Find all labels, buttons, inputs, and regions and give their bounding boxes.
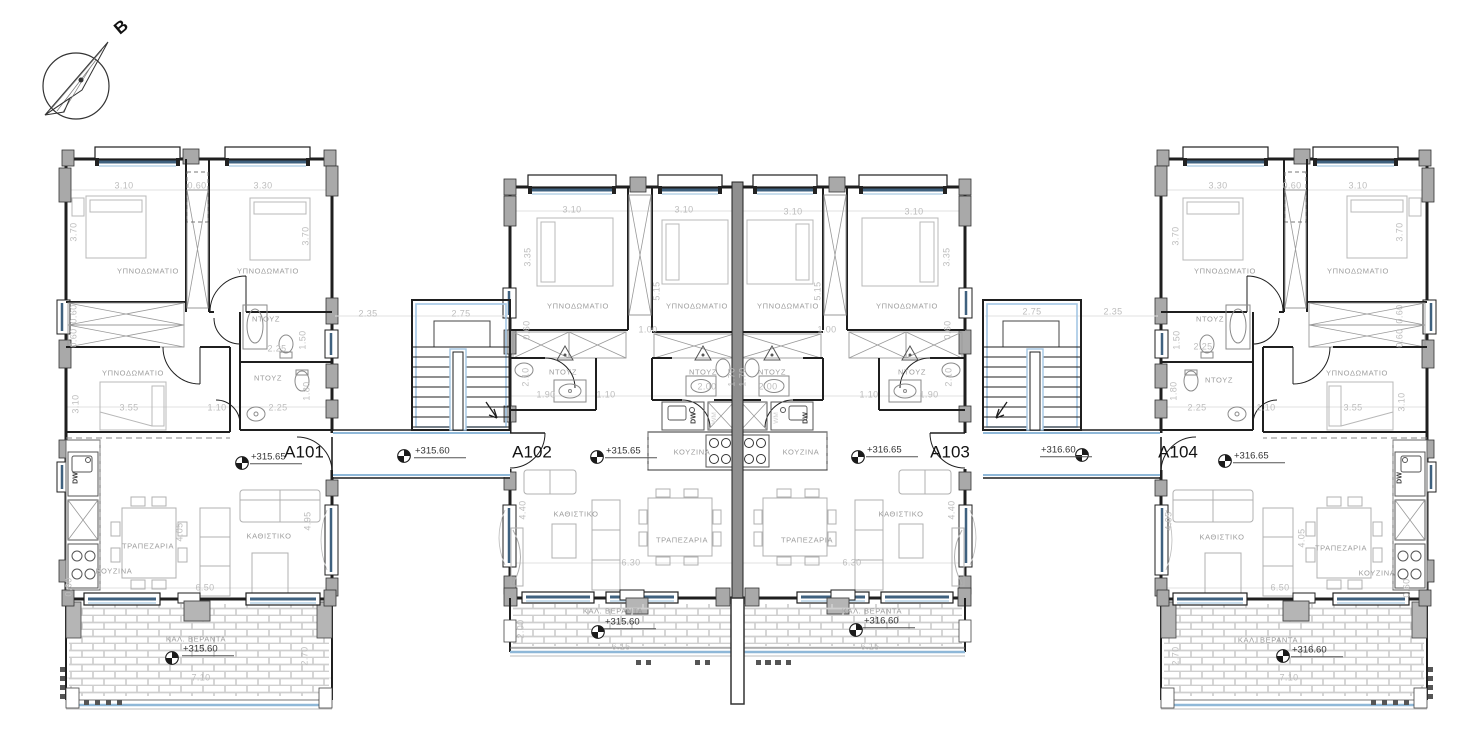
level-label: +316.60 <box>863 616 915 628</box>
appliance-label: WM <box>774 412 781 424</box>
room-label: ΚΟΥΖΙΝΑ <box>783 448 820 456</box>
apartment-id-label: A104 <box>1158 444 1198 461</box>
dimension-label: 1.10 <box>1256 404 1275 413</box>
dimension-label: 0.60 <box>1396 304 1405 323</box>
dimension-label: 2.35 <box>1103 308 1122 317</box>
dimension-label: 3.10 <box>1348 182 1367 191</box>
room-label: ΚΑΛ. ΒΕΡΑΝΤΑ <box>842 607 902 615</box>
level-label: +315.65 <box>605 446 657 458</box>
dimension-label: 2.75 <box>451 310 470 319</box>
dimension-label: 4.40 <box>519 500 528 519</box>
north-label: B <box>111 17 131 38</box>
appliance-label: WM <box>712 412 719 424</box>
dimension-label: 6.15 <box>860 643 879 652</box>
dimension-label: 1.70 <box>739 367 748 386</box>
room-label: ΤΡΑΠΕΖΑΡΙΑ <box>781 536 833 544</box>
room-label: ΝΤΟΥΖ <box>758 368 786 376</box>
dimension-label: 0.60 <box>1282 182 1301 191</box>
dimension-label: 0.60 <box>65 577 74 596</box>
dimension-label: 3.30 <box>253 182 272 191</box>
room-label: ΥΠΝΟΔΩΜΑΤΙΟ <box>102 369 164 377</box>
dimension-label: 2.25 <box>1187 404 1206 413</box>
dimension-label: 1.00 <box>638 326 657 335</box>
appliance-label: DW <box>803 412 810 424</box>
level-label: +315.60 <box>182 644 234 656</box>
dimension-label: 4.05 <box>176 522 185 541</box>
dimension-label: 0.60 <box>523 320 532 339</box>
dimension-label: 1.00 <box>817 326 836 335</box>
level-label: +315.60 <box>604 617 656 629</box>
dimension-label: 3.10 <box>72 394 81 413</box>
room-label: ΚΑΛ. ΒΕΡΑΝΤΑ <box>1238 636 1298 644</box>
room-label: ΝΤΟΥΖ <box>689 368 717 376</box>
room-label: ΚΑΛ. ΒΕΡΑΝΤΑ <box>583 607 643 615</box>
room-label: ΚΑΛ. ΒΕΡΑΝΤΑ <box>166 635 226 643</box>
room-label: ΤΡΑΠΕΖΑΡΙΑ <box>656 536 708 544</box>
dimension-label: 3.35 <box>943 247 952 266</box>
dimension-label: 6.15 <box>611 643 630 652</box>
room-label: ΚΑΘΙΣΤΙΚΟ <box>553 510 598 518</box>
level-label: +316.60 <box>1040 445 1092 457</box>
room-label: ΝΤΟΥΖ <box>252 315 280 323</box>
level-label: +315.65 <box>250 452 302 464</box>
dimension-label: 3.70 <box>70 222 79 241</box>
room-label: ΚΑΘΙΣΤΙΚΟ <box>1199 533 1244 541</box>
dimension-label: 2.25 <box>267 345 286 354</box>
room-label: ΥΠΝΟΔΩΜΑΤΙΟ <box>1194 267 1256 275</box>
room-label: ΚΑΘΙΣΤΙΚΟ <box>246 532 291 540</box>
dimension-label: 5.15 <box>653 281 662 300</box>
dimension-label: 3.10 <box>1398 392 1407 411</box>
dimension-label: 0.60 <box>70 304 79 323</box>
dimension-label: 6.50 <box>195 584 214 593</box>
room-label: ΚΟΥΖΙΝΑ <box>674 448 711 456</box>
dimension-label: 1.50 <box>1173 330 1182 349</box>
room-label: ΝΤΟΥΖ <box>898 368 926 376</box>
floor-plan-canvas: B3.100.603.303.703.70ΥΠΝΟΔΩΜΑΤΙΟΥΠΝΟΔΩΜΑ… <box>0 0 1477 738</box>
room-label: ΥΠΝΟΔΩΜΑΤΙΟ <box>757 302 819 310</box>
dimension-label: 1.70 <box>728 367 737 386</box>
dimension-label: 4.95 <box>304 511 313 530</box>
room-label: ΤΡΑΠΕΖΑΡΙΑ <box>1315 544 1367 552</box>
room-label: ΥΠΝΟΔΩΜΑΤΙΟ <box>876 302 938 310</box>
dimension-label: 2.35 <box>358 310 377 319</box>
dimension-label: 1.90 <box>919 391 938 400</box>
dimension-label: 1.10 <box>596 391 615 400</box>
level-label: +316.65 <box>866 445 918 457</box>
dimension-label: 2.25 <box>1193 343 1212 352</box>
dimension-label: 7.10 <box>1279 674 1298 683</box>
dimension-label: 2.70 <box>301 646 310 665</box>
dimension-label: 0.60 <box>70 328 79 347</box>
dimension-label: 6.30 <box>842 559 861 568</box>
room-label: ΥΠΝΟΔΩΜΑΤΙΟ <box>237 267 299 275</box>
dimension-label: 1.90 <box>536 391 555 400</box>
dimension-label: 6.30 <box>621 559 640 568</box>
dimension-label: 2.00 <box>697 383 716 392</box>
dimension-label: 3.55 <box>119 404 138 413</box>
dimension-label: 4.40 <box>948 500 957 519</box>
dimension-label: 4.05 <box>1298 528 1307 547</box>
dimension-label: 1.10 <box>859 391 878 400</box>
dimension-label: 3.70 <box>302 226 311 245</box>
dimension-label: 2.00 <box>517 619 526 638</box>
dimension-label: 0.60 <box>1403 578 1412 597</box>
level-label: +316.65 <box>1233 451 1285 463</box>
room-label: ΝΤΟΥΖ <box>549 368 577 376</box>
dimension-label: 3.10 <box>783 208 802 217</box>
dimension-label: 3.30 <box>1208 182 1227 191</box>
appliance-label: DW <box>73 472 80 484</box>
dimension-label: 3.70 <box>1396 222 1405 241</box>
room-label: ΚΟΥΖΙΝΑ <box>1359 569 1396 577</box>
room-label: ΚΑΘΙΣΤΙΚΟ <box>878 510 923 518</box>
dimension-label: 1.50 <box>299 330 308 349</box>
level-label: +315.60 <box>414 446 466 458</box>
dimension-label: 0.60 <box>1396 328 1405 347</box>
room-label: ΥΠΝΟΔΩΜΑΤΙΟ <box>117 267 179 275</box>
dimension-label: 1.80 <box>1170 381 1179 400</box>
dimension-label: 2.10 <box>522 367 531 386</box>
dimension-label: 3.10 <box>904 208 923 217</box>
dimension-label: 1.10 <box>207 404 226 413</box>
level-label: +316.60 <box>1291 645 1343 657</box>
room-label: ΥΠΝΟΔΩΜΑΤΙΟ <box>1326 369 1388 377</box>
dimension-label: 3.10 <box>562 206 581 215</box>
dimension-label: 3.10 <box>674 206 693 215</box>
dimension-label: 2.75 <box>1022 308 1041 317</box>
dimension-label: 7.10 <box>191 674 210 683</box>
dimension-label: 2.70 <box>1172 646 1181 665</box>
dimension-label: 2.00 <box>758 383 777 392</box>
dimension-label: 3.55 <box>1343 404 1362 413</box>
room-label: ΝΤΟΥΖ <box>1196 315 1224 323</box>
appliance-label: DW <box>691 412 698 424</box>
apartment-id-label: A103 <box>930 444 970 461</box>
text-labels-layer: B3.100.603.303.703.70ΥΠΝΟΔΩΜΑΤΙΟΥΠΝΟΔΩΜΑ… <box>0 0 1477 738</box>
dimension-label: 3.35 <box>524 247 533 266</box>
room-label: ΝΤΟΥΖ <box>254 374 282 382</box>
dimension-label: 3.70 <box>1172 226 1181 245</box>
room-label: ΥΠΝΟΔΩΜΑΤΙΟ <box>666 302 728 310</box>
room-label: ΤΡΑΠΕΖΑΡΙΑ <box>122 542 174 550</box>
room-label: ΝΤΟΥΖ <box>1205 376 1233 384</box>
dimension-label: 2.10 <box>945 367 954 386</box>
dimension-label: 0.60 <box>187 182 206 191</box>
room-label: ΥΠΝΟΔΩΜΑΤΙΟ <box>1327 267 1389 275</box>
dimension-label: 3.10 <box>114 182 133 191</box>
dimension-label: 0.60 <box>944 320 953 339</box>
room-label: ΥΠΝΟΔΩΜΑΤΙΟ <box>547 302 609 310</box>
dimension-label: 4.95 <box>1165 511 1174 530</box>
room-label: ΚΟΥΖΙΝΑ <box>96 567 133 575</box>
appliance-label: DW <box>1397 472 1404 484</box>
dimension-label: 6.50 <box>1270 584 1289 593</box>
apartment-id-label: A102 <box>512 444 552 461</box>
dimension-label: 5.15 <box>814 281 823 300</box>
dimension-label: 2.25 <box>268 404 287 413</box>
dimension-label: 1.80 <box>303 381 312 400</box>
